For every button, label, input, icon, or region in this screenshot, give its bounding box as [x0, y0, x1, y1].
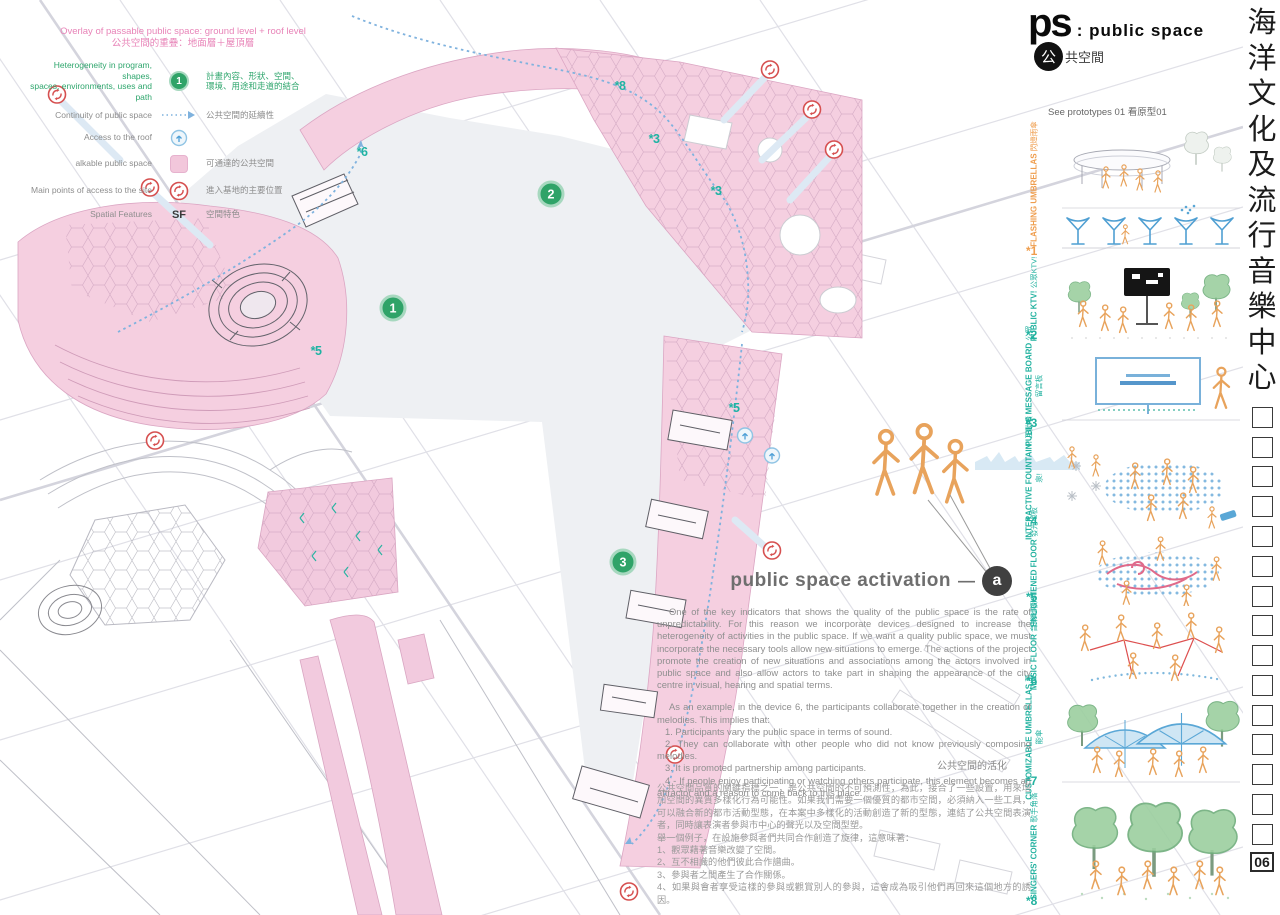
zh-list-item: 3、參與者之間產生了合作關係。	[657, 869, 1031, 881]
activation-title: public space activation	[730, 570, 951, 592]
legend-label: Main points of access to the site	[28, 185, 152, 196]
zh-list-item: 4、如果與會者享受這樣的參與或觀賞別人的參與，這會成為吸引他們再回來這個地方的誘…	[657, 881, 1031, 906]
customizable-umbrellas-illustration	[1062, 694, 1240, 790]
empty-square	[1252, 675, 1273, 696]
activation-badge: a	[982, 566, 1012, 596]
legend-label: Spatial Features	[28, 209, 152, 220]
empty-square	[1252, 496, 1273, 517]
empty-square	[1252, 705, 1273, 726]
empty-square	[1252, 645, 1273, 666]
legend-label: alkable public space	[28, 158, 152, 169]
enlightened-floor-illustration	[1062, 534, 1240, 606]
page-number: 06	[1250, 852, 1274, 872]
legend-label-zh: 公共空間的延續性	[206, 110, 338, 121]
music-floor-illustration	[1062, 610, 1240, 690]
prototype-label: FLASHING UMBRELLAS 閃燈雨傘	[1029, 121, 1039, 247]
side-title-char: 中	[1247, 326, 1276, 362]
empty-square	[1252, 615, 1273, 636]
zh-list-item: 1、觀眾藉著音樂改變了空間。	[657, 844, 1031, 856]
flashing-umbrellas-illustration	[1062, 122, 1240, 258]
empty-square	[1252, 586, 1273, 607]
empty-square	[1252, 407, 1273, 428]
sf-icon: SF	[172, 209, 186, 221]
prototype-label-zh: 公眾KTV!	[1029, 257, 1038, 289]
side-squares	[1252, 403, 1273, 850]
empty-square	[1252, 824, 1273, 845]
zh-paragraph-1: 公共空間品質的關鍵指標之一，是公共空間的不可預測性，為此，接合了一些設置，用來增…	[657, 782, 1031, 832]
public-ktv-illustration	[1062, 262, 1240, 344]
singers-corner-illustration	[1062, 794, 1240, 910]
prototype-row: FLASHING UMBRELLAS 閃燈雨傘 *1	[1012, 122, 1242, 262]
legend-title-en: Overlay of passable public space: ground…	[28, 26, 338, 38]
activation-paragraph-2: As an example, in the device 6, the part…	[657, 701, 1031, 725]
legend-label: Continuity of public space	[28, 110, 152, 121]
side-title-char: 海	[1247, 6, 1276, 42]
legend-label-zh: 計畫內容、形狀、空間、 環境、用途和走道的結合	[206, 71, 338, 92]
prototype-row: ENLIGHTENED FLOOR 發光地板 *5	[1012, 534, 1242, 608]
side-title-char: 心	[1247, 361, 1276, 397]
public-badge-text: 共空間	[1065, 47, 1104, 66]
activation-zh-body: 公共空間品質的關鍵指標之一，是公共空間的不可預測性，為此，接合了一些設置，用來增…	[657, 782, 1031, 906]
empty-square	[1252, 764, 1273, 785]
zh-paragraph-2: 舉一個例子，在設施參與者們共同合作創造了旋律，這意味著：	[657, 832, 1031, 844]
secondary-map	[0, 441, 620, 915]
side-title-char: 化	[1247, 113, 1276, 149]
side-title-char: 行	[1247, 219, 1276, 255]
side-title-char: 樂	[1247, 290, 1276, 326]
empty-square	[1252, 556, 1273, 577]
side-title-char: 洋	[1247, 42, 1276, 78]
legend-label: Heterogeneity in program, shapes, spaces…	[28, 60, 152, 102]
legend-title-zh: 公共空間的重疊：地面層＋屋頂層	[28, 38, 338, 50]
activation-zh-heading: 公共空間的活化	[657, 757, 1007, 772]
zh-list-item: 2、互不相識的他們彼此合作譜曲。	[657, 856, 1031, 868]
pink-area-icon	[170, 155, 188, 173]
prototype-label-zh: 閃燈雨傘	[1029, 121, 1038, 151]
side-title-char: 文	[1247, 77, 1276, 113]
green-number-icon: 1	[169, 71, 189, 91]
page-header: ps : public space 公 共空間	[1028, 4, 1204, 71]
side-title-char: 及	[1247, 148, 1276, 184]
site-access-icon	[158, 181, 200, 201]
side-title-char: 音	[1247, 255, 1276, 291]
activation-dash: —	[958, 571, 975, 591]
prototype-row: PUBLIC MESSAGE BOARD 公眾留言板 *3	[1012, 348, 1242, 434]
message-board-illustration	[1062, 348, 1240, 432]
roof-access-icon	[158, 129, 200, 147]
side-title: 海洋文化及流行音樂中心	[1247, 6, 1276, 397]
legend-label-zh: 進入基地的主要位置	[206, 185, 338, 196]
prototype-row: MUSIC FLOOR 音樂地板 *6	[1012, 610, 1242, 692]
side-bar: 海洋文化及流行音樂中心 06	[1246, 6, 1278, 911]
empty-square	[1252, 437, 1273, 458]
legend: Overlay of passable public space: ground…	[28, 26, 338, 221]
pink-route-ribbons	[300, 615, 442, 915]
side-title-char: 流	[1247, 184, 1276, 220]
prototype-row: INTERACTIVE FOUNTAIN! 互動噴泉! *4	[1012, 436, 1242, 532]
activation-list-item: 1. Participants vary the public space in…	[657, 726, 1031, 738]
prototype-row: CUSTOMIZABLE UMBRELLAS 萬能傘 *7	[1012, 694, 1242, 792]
legend-label-zh: 可通達的公共空間	[206, 158, 338, 169]
empty-square	[1252, 466, 1273, 487]
activation-header: public space activation — a	[650, 566, 1012, 596]
prototype-row: SINGERS' CORNER 歌手角落 *8	[1012, 794, 1242, 912]
empty-square	[1252, 526, 1273, 547]
poster-page: 123*6*8*3*3*5*5	[0, 0, 1280, 915]
prototype-label-zh: 發光地板	[1029, 507, 1038, 537]
page-title: : public space	[1077, 21, 1204, 41]
prototype-label-en: FLASHING UMBRELLAS	[1029, 153, 1038, 246]
public-badge: 公	[1034, 42, 1063, 71]
legend-label: Access to the roof	[28, 132, 152, 143]
interactive-fountain-illustration	[1062, 436, 1240, 530]
empty-square	[1252, 794, 1273, 815]
empty-square	[1252, 734, 1273, 755]
ps-logo: ps	[1028, 4, 1071, 42]
prototype-row: PUBLIC KTV! 公眾KTV! *2	[1012, 262, 1242, 346]
legend-label-zh: 空間特色	[206, 209, 338, 220]
prototypes-heading: See prototypes 01 看原型01	[1048, 104, 1167, 118]
dashed-path-icon	[158, 110, 200, 120]
activation-paragraph-1: One of the key indicators that shows the…	[657, 606, 1031, 691]
